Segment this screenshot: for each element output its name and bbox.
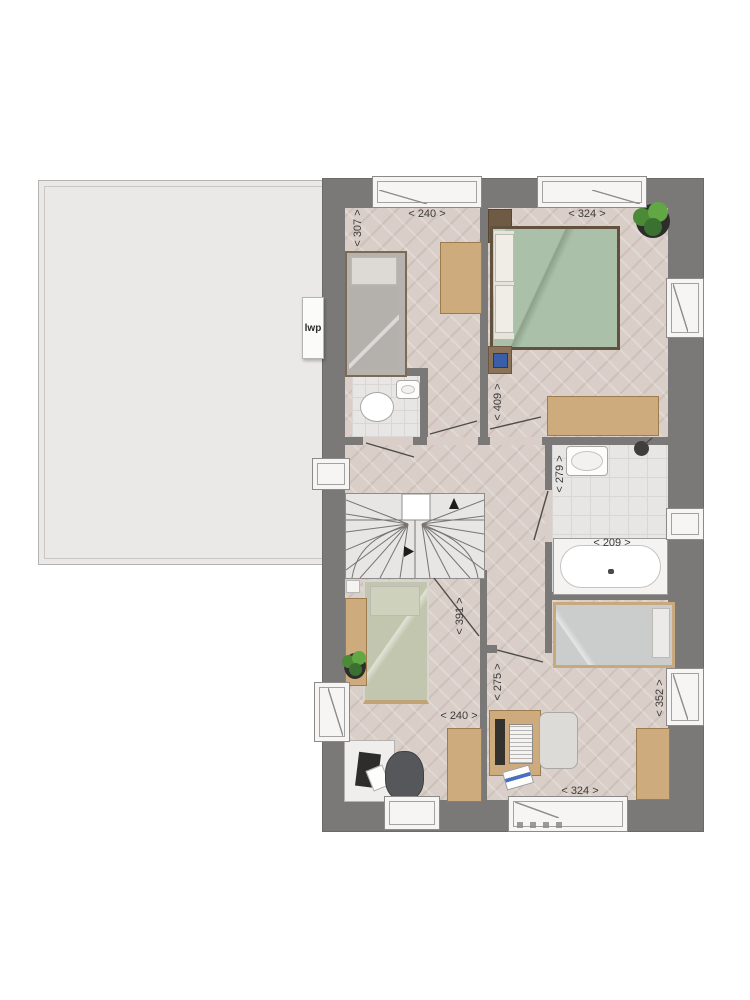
dim-bedroom3-width: < 240 > — [440, 710, 477, 722]
dim-bedroom1-depth: < 307 > — [352, 209, 364, 246]
dim-bathroom-depth: < 279 > — [554, 455, 566, 492]
dim-bedroom1-width: < 240 > — [408, 208, 445, 220]
dim-master-width: < 324 > — [568, 208, 605, 220]
dim-landing-depth: < 391 > — [454, 597, 466, 634]
dim-bedroom4-width: < 324 > — [561, 785, 598, 797]
dim-bathroom-width: < 209 > — [593, 537, 630, 549]
floor-plan: lwp < 240 > < 307 > < 324 > < 409 > < 27… — [0, 0, 750, 1000]
dim-bedroom4-left: < 275 > — [492, 663, 504, 700]
dim-master-depth: < 409 > — [492, 383, 504, 420]
dim-bedroom4-depth: < 352 > — [654, 679, 666, 716]
door-swing-lines — [0, 0, 750, 1000]
